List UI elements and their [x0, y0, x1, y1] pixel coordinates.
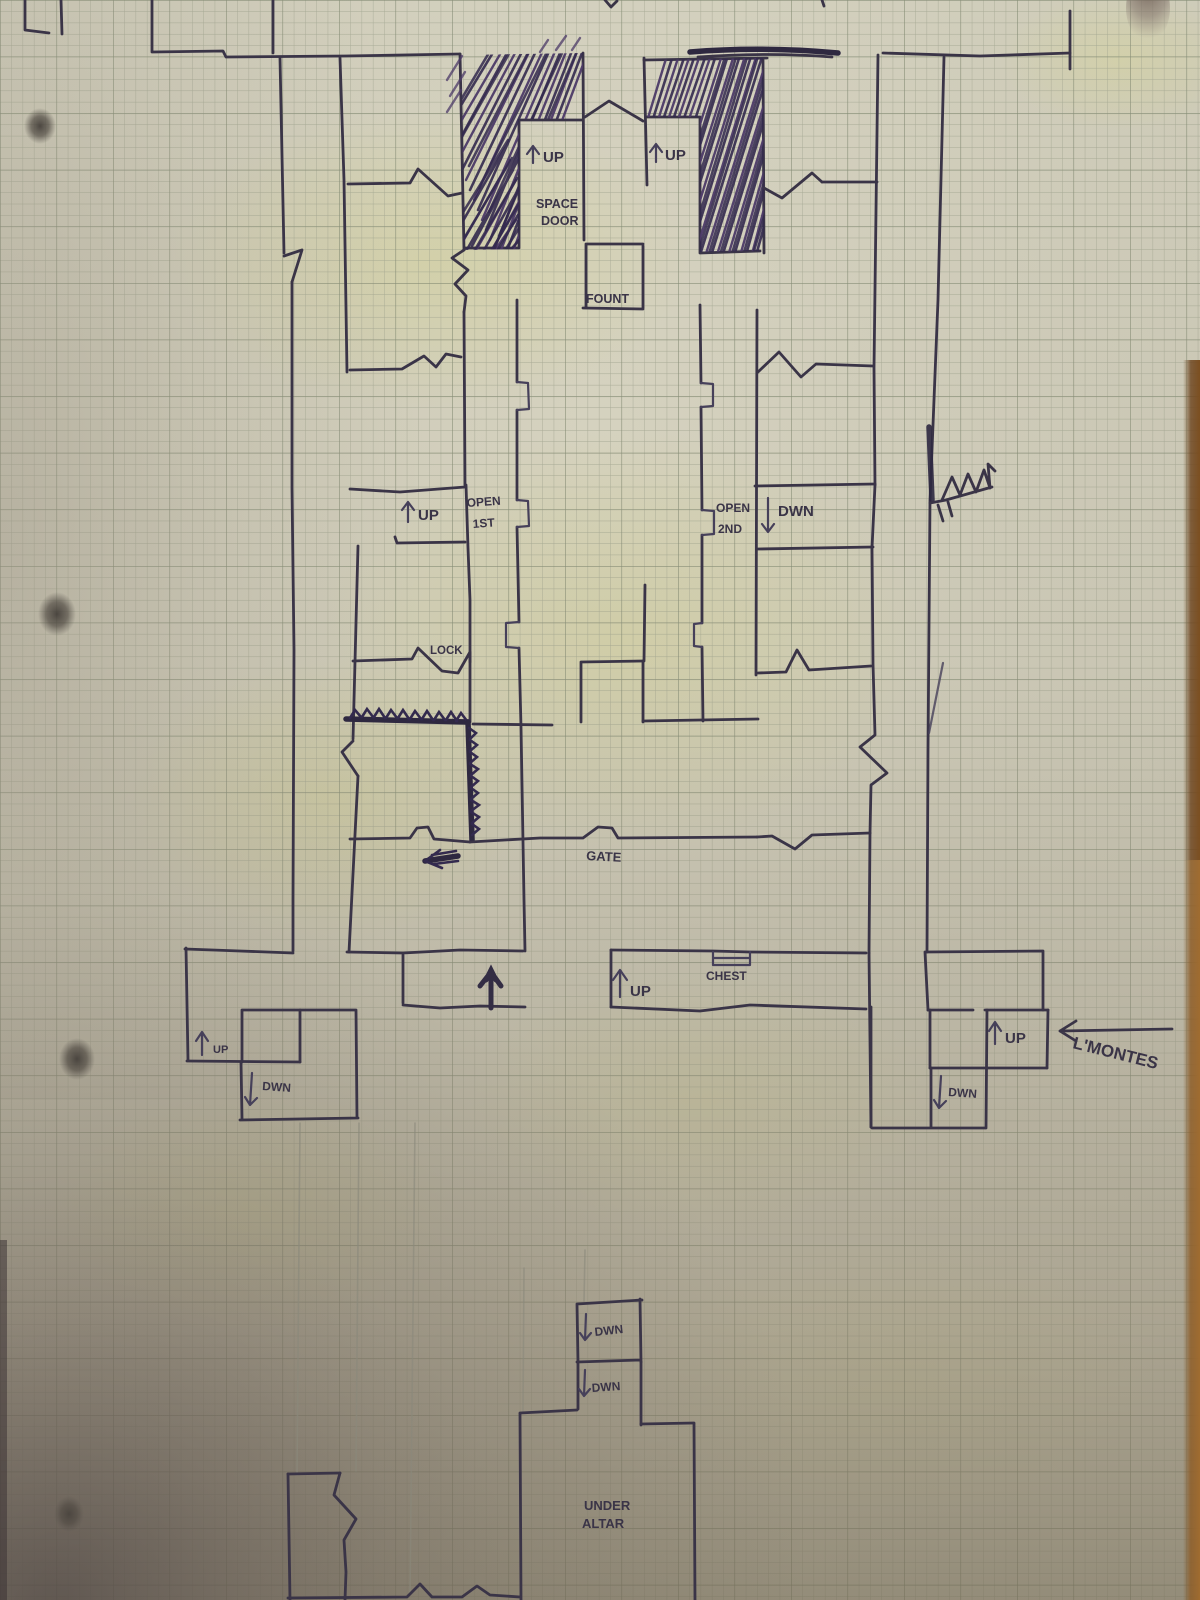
svg-text:UP: UP	[665, 147, 686, 164]
svg-text:UP: UP	[213, 1044, 228, 1056]
svg-text:UP: UP	[543, 149, 564, 166]
svg-text:CHEST: CHEST	[706, 969, 747, 983]
svg-text:OPEN: OPEN	[466, 494, 501, 510]
svg-text:DWN: DWN	[591, 1379, 621, 1395]
svg-text:DWN: DWN	[948, 1085, 978, 1101]
svg-text:LOCK: LOCK	[430, 645, 463, 657]
svg-text:UP: UP	[418, 507, 439, 524]
svg-text:DWN: DWN	[594, 1322, 624, 1339]
svg-text:UNDER: UNDER	[584, 1498, 631, 1513]
svg-text:1ST: 1ST	[472, 515, 496, 531]
svg-text:DOOR: DOOR	[541, 214, 579, 228]
svg-text:SPACE: SPACE	[536, 197, 578, 211]
svg-text:DWN: DWN	[778, 503, 814, 520]
svg-text:2ND: 2ND	[718, 522, 742, 536]
svg-text:GATE: GATE	[586, 848, 622, 865]
svg-text:UP: UP	[630, 983, 651, 1000]
svg-text:ALTAR: ALTAR	[582, 1516, 625, 1531]
svg-text:OPEN: OPEN	[716, 501, 750, 515]
svg-text:DWN: DWN	[262, 1079, 292, 1095]
svg-text:FOUNT: FOUNT	[586, 292, 629, 306]
svg-text:UP: UP	[1005, 1030, 1026, 1047]
